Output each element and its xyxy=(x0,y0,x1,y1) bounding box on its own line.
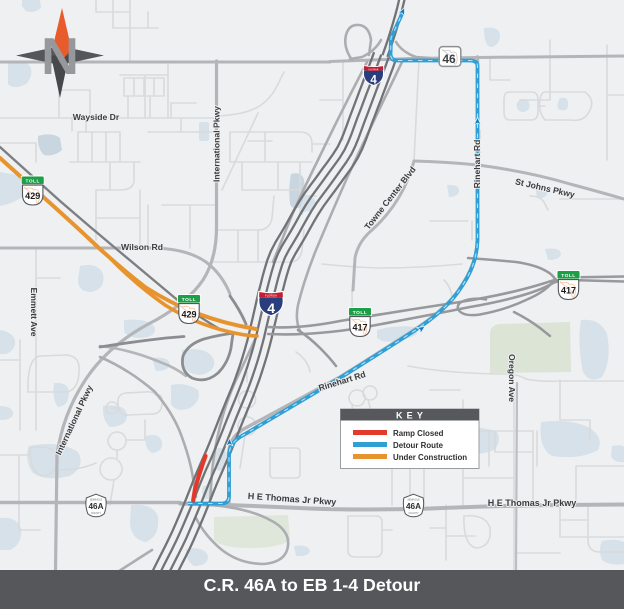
svg-text:KEY: KEY xyxy=(396,410,427,420)
svg-text:SEMINOLE: SEMINOLE xyxy=(90,499,103,502)
svg-text:Detour Route: Detour Route xyxy=(393,441,444,450)
svg-text:COUNTY: COUNTY xyxy=(91,512,101,515)
svg-text:Wayside Dr: Wayside Dr xyxy=(73,112,120,122)
svg-text:Under Construction: Under Construction xyxy=(393,453,467,462)
svg-text:TOLL: TOLL xyxy=(561,273,575,279)
svg-text:Ramp Closed: Ramp Closed xyxy=(393,429,444,438)
svg-text:H E Thomas Jr Pkwy: H E Thomas Jr Pkwy xyxy=(488,498,577,508)
svg-text:Oregon Ave: Oregon Ave xyxy=(507,354,517,402)
svg-text:Emmett Ave: Emmett Ave xyxy=(29,287,39,336)
svg-text:4: 4 xyxy=(370,74,377,86)
svg-text:FLORIDA: FLORIDA xyxy=(265,294,277,298)
svg-text:4: 4 xyxy=(267,300,275,316)
svg-text:COUNTY: COUNTY xyxy=(408,512,418,515)
svg-text:TOLL: TOLL xyxy=(25,179,39,185)
svg-text:TOLL: TOLL xyxy=(353,310,367,316)
svg-text:C.R. 46A to EB 1-4 Detour: C.R. 46A to EB 1-4 Detour xyxy=(204,575,421,595)
svg-text:SEMINOLE: SEMINOLE xyxy=(407,499,420,502)
svg-text:International Pkwy: International Pkwy xyxy=(212,106,222,182)
svg-text:417: 417 xyxy=(561,286,576,296)
svg-text:Wilson Rd: Wilson Rd xyxy=(121,242,163,252)
svg-text:N: N xyxy=(41,28,79,86)
svg-text:417: 417 xyxy=(352,323,367,333)
svg-text:46A: 46A xyxy=(88,502,103,511)
svg-text:FLORIDA: FLORIDA xyxy=(369,68,379,71)
svg-text:46A: 46A xyxy=(406,502,421,511)
svg-text:429: 429 xyxy=(181,310,196,320)
svg-text:Rinehart Rd: Rinehart Rd xyxy=(472,140,482,189)
svg-text:429: 429 xyxy=(25,191,40,201)
svg-text:46: 46 xyxy=(442,52,456,66)
svg-text:TOLL: TOLL xyxy=(182,297,196,303)
